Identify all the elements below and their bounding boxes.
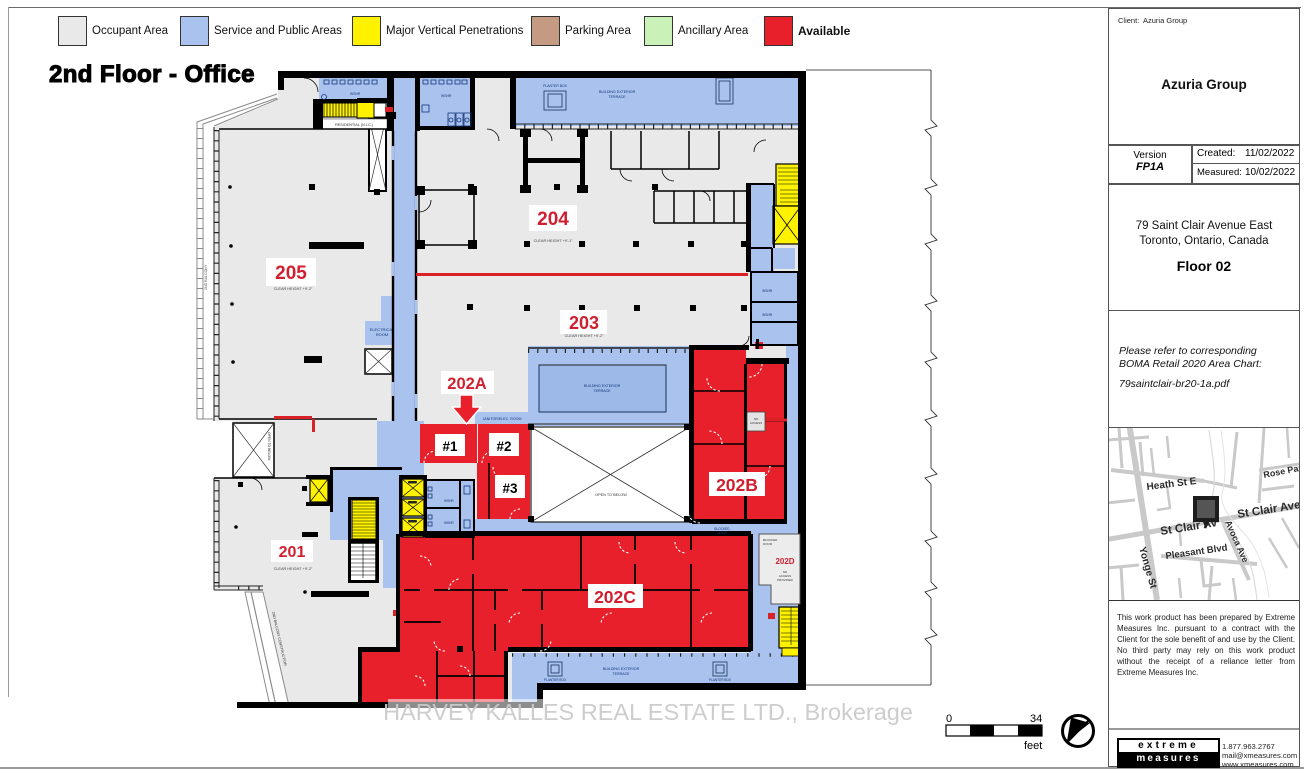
svg-text:2ND BALCONY: 2ND BALCONY bbox=[204, 264, 208, 290]
svg-text:WSHR: WSHR bbox=[762, 313, 773, 317]
svg-text:RESIDENTIAL (N.I.C.): RESIDENTIAL (N.I.C.) bbox=[335, 123, 374, 127]
svg-text:204: 204 bbox=[537, 209, 569, 230]
svg-text:WSHR: WSHR bbox=[350, 92, 361, 96]
svg-text:CLEAR HEIGHT +9'-1": CLEAR HEIGHT +9'-1" bbox=[534, 239, 573, 243]
svg-text:PLANTER BOX: PLANTER BOX bbox=[709, 678, 732, 682]
svg-text:#3: #3 bbox=[502, 481, 518, 496]
svg-text:CLEAR HEIGHT +9'-2": CLEAR HEIGHT +9'-2" bbox=[274, 567, 313, 571]
svg-text:BUILDING EXTERIOR: BUILDING EXTERIOR bbox=[603, 667, 640, 671]
svg-text:TERRACE: TERRACE bbox=[612, 672, 630, 676]
svg-text:BUILDING EXTERIOR: BUILDING EXTERIOR bbox=[584, 384, 621, 388]
svg-text:WSHR: WSHR bbox=[444, 499, 454, 503]
svg-text:JANITOR/ELEC. ROOM: JANITOR/ELEC. ROOM bbox=[483, 417, 522, 421]
svg-text:ROOM: ROOM bbox=[376, 332, 388, 337]
svg-text:TERRACE: TERRACE bbox=[593, 389, 611, 393]
svg-text:WSHR: WSHR bbox=[762, 289, 773, 293]
svg-text:WSHR: WSHR bbox=[444, 521, 454, 525]
svg-text:205: 205 bbox=[275, 263, 307, 284]
svg-text:34: 34 bbox=[1030, 713, 1042, 725]
svg-text:201: 201 bbox=[279, 544, 306, 561]
svg-text:#2: #2 bbox=[496, 439, 511, 454]
svg-text:HARVEY KALLES REAL ESTATE LTD.: HARVEY KALLES REAL ESTATE LTD., Brokerag… bbox=[383, 699, 913, 725]
svg-text:ACCESS: ACCESS bbox=[750, 421, 762, 425]
svg-text:CLEAR HEIGHT +9'-2": CLEAR HEIGHT +9'-2" bbox=[565, 334, 604, 338]
svg-text:TERRACE: TERRACE bbox=[608, 95, 626, 99]
svg-text:PLANTER BOX: PLANTER BOX bbox=[543, 84, 567, 88]
svg-text:202D: 202D bbox=[775, 557, 794, 566]
svg-text:OPEN TO BELOW: OPEN TO BELOW bbox=[267, 432, 271, 461]
svg-text:203: 203 bbox=[569, 313, 599, 333]
svg-text:BUILDING EXTERIOR: BUILDING EXTERIOR bbox=[599, 90, 636, 94]
svg-text:PLANTER BOX: PLANTER BOX bbox=[544, 678, 567, 682]
svg-text:202C: 202C bbox=[594, 587, 636, 607]
svg-text:OPEN TO BELOW: OPEN TO BELOW bbox=[595, 493, 627, 497]
svg-text:DOOR: DOOR bbox=[717, 531, 727, 535]
svg-text:202B: 202B bbox=[716, 475, 758, 495]
svg-text:PROVIDED: PROVIDED bbox=[777, 578, 794, 582]
svg-text:WSHR: WSHR bbox=[441, 94, 452, 98]
svg-text:#1: #1 bbox=[442, 439, 458, 454]
svg-text:CLEAR HEIGHT +9'-2": CLEAR HEIGHT +9'-2" bbox=[274, 287, 313, 291]
svg-text:feet: feet bbox=[1024, 740, 1042, 752]
svg-text:202A: 202A bbox=[447, 375, 487, 393]
svg-text:DOOR: DOOR bbox=[763, 542, 773, 546]
svg-text:0: 0 bbox=[946, 713, 952, 725]
